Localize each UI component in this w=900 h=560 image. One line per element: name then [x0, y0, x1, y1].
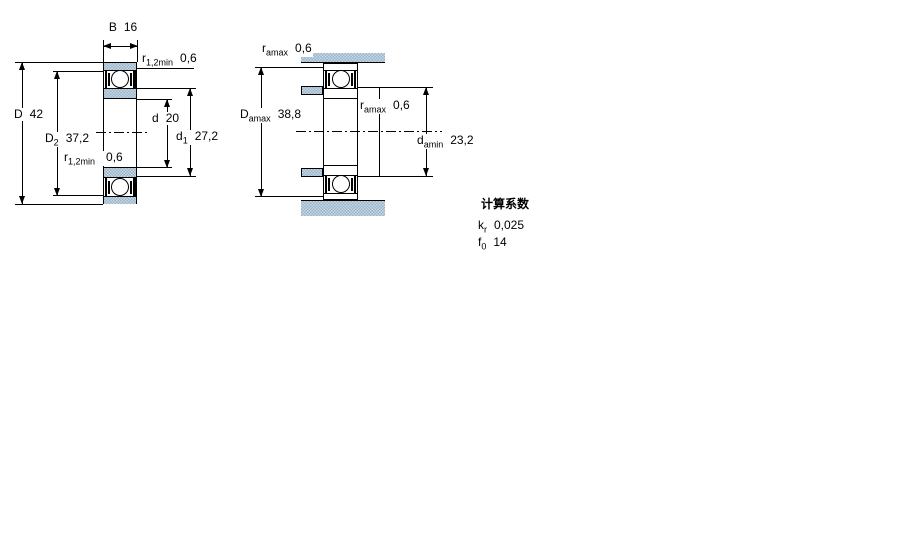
fig1-centerline — [96, 132, 148, 133]
fig2-ring-line-2 — [324, 88, 357, 89]
fig2-shaft-shoulder-top — [301, 86, 323, 95]
fig2-damin-label: damin23,2 — [416, 134, 475, 149]
fig1-D2-arrow-up — [54, 71, 60, 79]
fig1-seal-top-right-lip — [130, 73, 132, 86]
fig1-d1-arrow-up — [187, 88, 193, 96]
fig1-D2-arrow-down — [54, 188, 60, 196]
fig1-r-bottom-label: r1,2min0,6 — [63, 151, 124, 166]
fig2-Damax-arrow-up — [258, 67, 264, 75]
fig1-D-extension-bottom — [15, 204, 103, 205]
fig2-ball-bottom — [332, 175, 350, 193]
fig1-seal-bottom-left-lip — [108, 181, 110, 194]
fig1-outer-ring-bottom — [104, 196, 136, 204]
fig1-bore-label: d20 — [151, 112, 180, 125]
fig1-d1-extension-bottom — [136, 176, 196, 177]
fig2-damin-extension-bottom — [358, 176, 433, 177]
fig1-D-extension-top — [15, 62, 103, 63]
fig2-seal-bottom-right-lip — [351, 178, 353, 191]
fig1-d-arrow-down — [164, 160, 170, 168]
fig1-outer-diameter-label: D42 — [13, 108, 44, 121]
fig1-d-dimension-line — [167, 99, 168, 168]
fig2-Damax-label: Damax38,8 — [239, 108, 302, 123]
fig1-r-top-label: r1,2min0,6 — [141, 52, 198, 67]
fig1-D-arrow-up — [19, 62, 25, 70]
fig1-seal-top-right — [133, 71, 136, 89]
fig1-seal-bottom-left — [105, 178, 108, 196]
fig2-bore-line-bottom — [324, 165, 357, 166]
fig1-inner-ring-top — [104, 88, 136, 99]
fig1-B-arrow-left — [103, 43, 111, 49]
fig2-bore-line-top — [324, 98, 357, 99]
fig2-r-mid-label: ramax0,6 — [359, 99, 411, 114]
fig2-ball-top — [332, 70, 350, 88]
bearing-drawing-canvas: B16 r1,2min0,6 D42 D237,2 d20 d127,2 r1,… — [0, 0, 900, 560]
fig1-width-label: B16 — [104, 21, 142, 34]
fig2-r-top-label: ramax0,6 — [261, 42, 313, 57]
fig2-seal-top-right-lip — [351, 73, 353, 86]
fig1-D2-extension-top — [53, 71, 103, 72]
fig1-seal-bottom-right-lip — [130, 181, 132, 194]
factor-f0: f014 — [478, 235, 507, 251]
fig2-Damax-arrow-down — [258, 189, 264, 197]
fig2-housing-shoulder-line-bottom — [255, 196, 323, 197]
fig2-seal-bottom-left-lip — [328, 178, 330, 191]
fig2-ring-line-4 — [324, 193, 357, 194]
fig1-D-dimension-line — [22, 62, 23, 205]
fig1-d-arrow-up — [164, 99, 170, 107]
fig2-seal-top-left — [325, 71, 328, 88]
fig2-damin-extension-top — [358, 87, 433, 88]
fig2-seal-bottom-left — [325, 176, 328, 193]
fig2-shaft-shoulder-bottom — [301, 168, 323, 177]
fig1-D-arrow-down — [19, 196, 25, 204]
fig2-housing-shoulder-line-top — [255, 67, 323, 68]
fig1-r-top-reference-line — [137, 68, 194, 69]
fig1-d1-label: d127,2 — [175, 130, 219, 145]
calculation-factors-title: 计算系数 — [481, 195, 529, 212]
fig2-housing-top — [301, 53, 385, 63]
fig2-housing-bottom — [301, 200, 385, 216]
fig2-seal-top-right — [354, 71, 357, 88]
fig1-seal-bottom-right — [133, 178, 136, 196]
fig1-d2-label: D237,2 — [44, 132, 90, 147]
fig1-D2-extension-bottom — [53, 195, 103, 196]
fig2-damin-arrow-up — [423, 87, 429, 95]
fig1-d1-arrow-down — [187, 168, 193, 176]
fig1-B-arrow-right — [130, 43, 138, 49]
fig1-ball-top — [111, 70, 129, 88]
fig1-seal-top-left — [105, 71, 108, 89]
fig2-seal-bottom-right — [354, 176, 357, 193]
fig2-Damax-dimension-line — [261, 67, 262, 197]
fig1-seal-top-left-lip — [108, 73, 110, 86]
fig2-seal-top-left-lip — [328, 73, 330, 86]
factor-kr: kr0,025 — [478, 218, 524, 234]
fig2-damin-arrow-down — [423, 168, 429, 176]
fig1-inner-ring-bottom — [104, 167, 136, 178]
fig2-centerline — [296, 131, 442, 132]
fig1-ball-bottom — [111, 178, 129, 196]
